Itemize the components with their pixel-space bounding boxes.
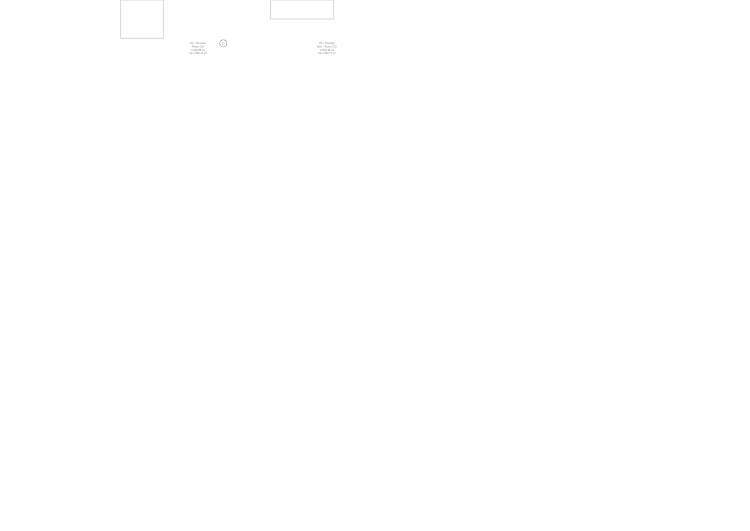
svg-text:V2 1.382,70 m³: V2 1.382,70 m³ [189, 51, 207, 55]
svg-text:A 460,88 m²: A 460,88 m² [191, 48, 205, 52]
svg-text:A 976,18 m²: A 976,18 m² [320, 48, 334, 52]
svg-text:Room CSI: Room CSI [192, 44, 204, 48]
svg-text:P4 - P.Quarto: P4 - P.Quarto [319, 41, 335, 45]
svg-text:P4 - Terrazza: P4 - Terrazza [190, 41, 206, 45]
svg-text:V2 1.382,77 m³: V2 1.382,77 m³ [318, 51, 336, 55]
svg-text:BUL - Room CSI: BUL - Room CSI [317, 44, 336, 48]
